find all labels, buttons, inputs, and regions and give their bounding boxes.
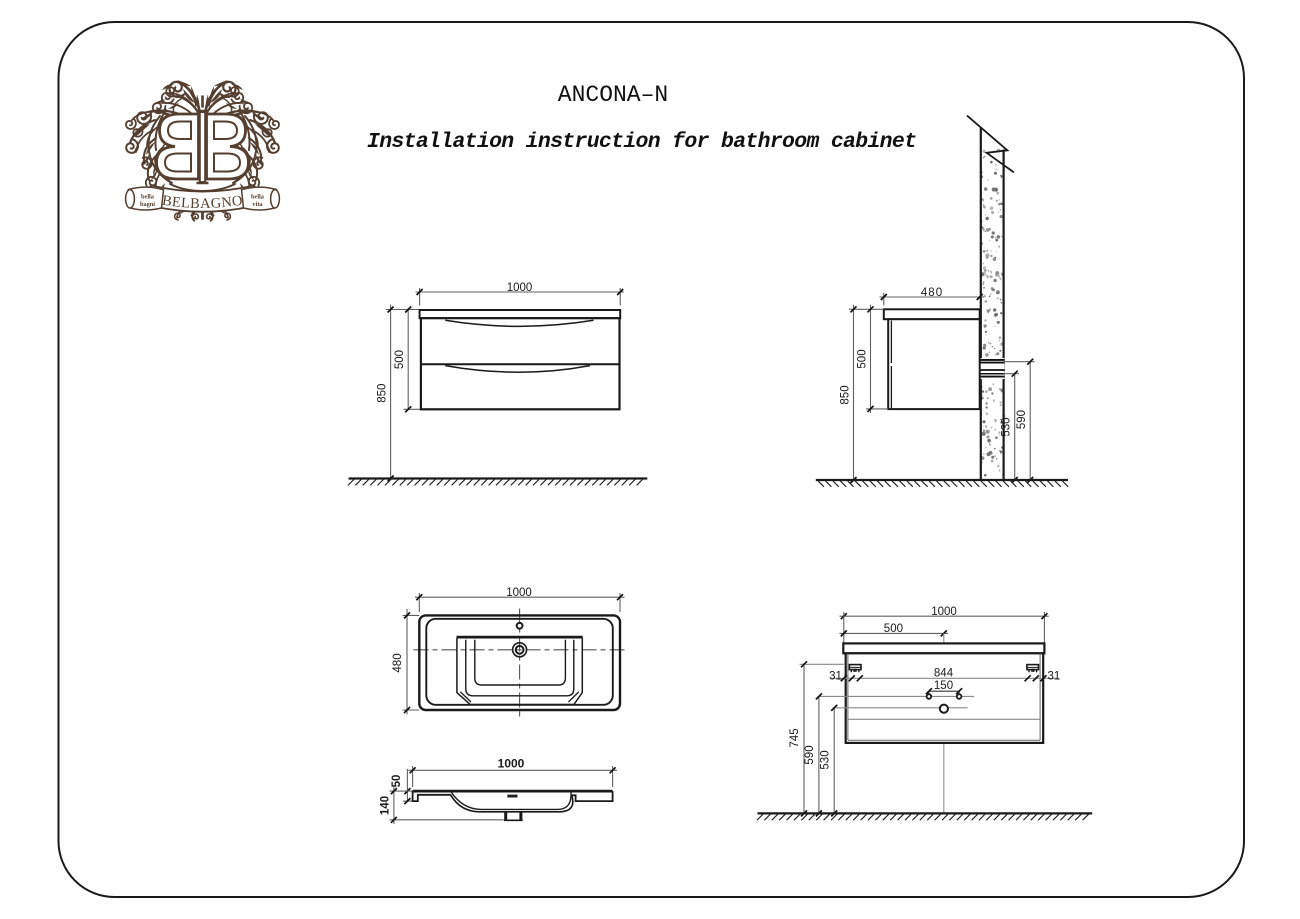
svg-text:500: 500 (857, 349, 869, 368)
svg-text:bella: bella (141, 194, 155, 201)
svg-text:1000: 1000 (507, 282, 533, 294)
svg-text:480: 480 (921, 287, 943, 299)
svg-text:500: 500 (394, 350, 406, 369)
svg-text:ANCONA–N: ANCONA–N (558, 82, 668, 108)
svg-text:31: 31 (829, 670, 842, 682)
svg-text:500: 500 (884, 623, 903, 635)
svg-text:50: 50 (391, 775, 403, 788)
svg-text:31: 31 (1048, 670, 1061, 682)
svg-text:1000: 1000 (931, 606, 957, 618)
svg-text:480: 480 (392, 653, 404, 672)
svg-text:bagni: bagni (140, 201, 155, 208)
svg-text:530: 530 (1001, 417, 1013, 436)
svg-text:844: 844 (934, 668, 954, 680)
svg-text:140: 140 (379, 796, 391, 815)
svg-text:850: 850 (840, 385, 852, 404)
svg-text:150: 150 (934, 680, 953, 692)
svg-text:850: 850 (377, 384, 389, 403)
svg-text:530: 530 (819, 750, 831, 769)
svg-text:1000: 1000 (506, 587, 532, 599)
svg-text:745: 745 (789, 728, 801, 747)
svg-text:1000: 1000 (498, 757, 525, 771)
svg-text:590: 590 (804, 745, 816, 764)
svg-text:bella: bella (251, 194, 265, 201)
svg-text:590: 590 (1016, 410, 1028, 429)
svg-text:vita: vita (252, 201, 263, 208)
svg-text:Installation instruction for b: Installation instruction for bathroom ca… (367, 130, 917, 154)
